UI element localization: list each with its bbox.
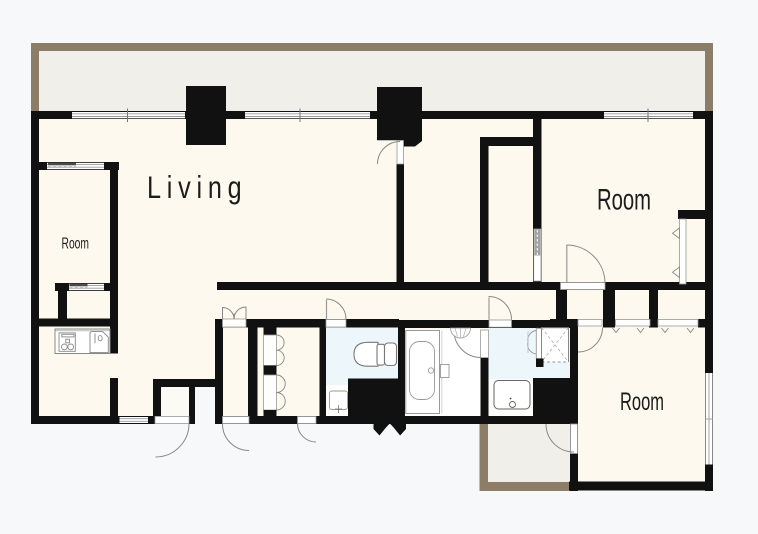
svg-text:Room: Room — [597, 184, 651, 217]
svg-text:Room: Room — [620, 388, 664, 416]
svg-text:Room: Room — [62, 236, 90, 253]
svg-text:Living: Living — [147, 170, 247, 205]
